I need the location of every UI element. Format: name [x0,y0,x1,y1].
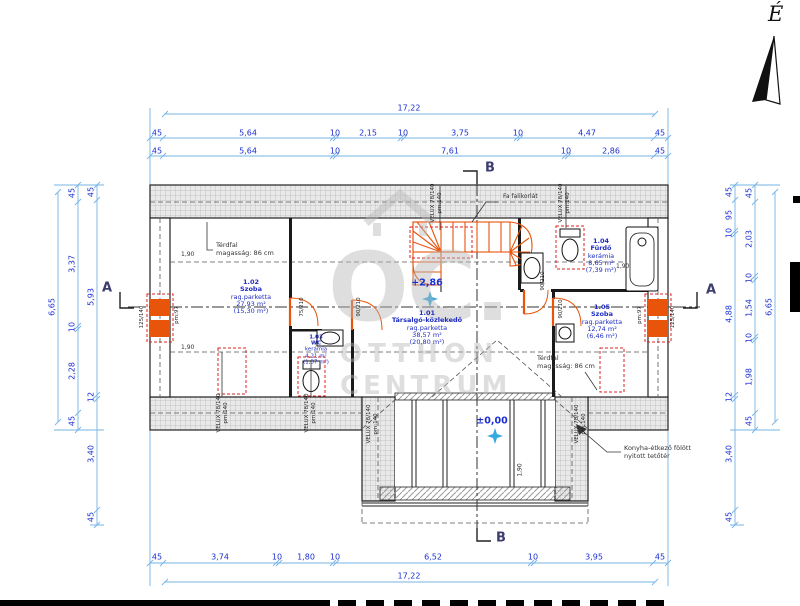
dim-label: 3,74 [211,553,229,562]
dim-label: 95 [725,210,734,220]
dim-label: 2,15 [359,129,377,138]
dim-label: 45 [87,512,96,522]
room-area: 4,21 m² [303,353,329,359]
dim-label: 3,37 [68,255,77,273]
dim-label: 45 [745,416,754,426]
dim-label: 45 [68,416,77,426]
section-marker-b-bottom: B [496,531,506,546]
level-ground: ±0,00 [476,416,507,427]
dim-label: 45 [655,553,665,562]
window-size-label: 125/140 [670,306,676,329]
dim-label: 10 [513,129,523,138]
headroom-label: 1,90 [517,463,524,476]
floor-plan-drawing: OC. OTTHON CENTRUM [0,0,800,606]
north-label: É [768,2,783,26]
dim-label: 1,80 [297,553,315,562]
dim-label: 10 [398,129,408,138]
room-area-reduced: (20,80 m²) [392,339,462,346]
dim-label: 45 [725,512,734,522]
dim-label: 45 [745,188,754,198]
dim-label: 10 [725,228,734,238]
dim-label: 10 [561,147,571,156]
dim-label: 10 [528,553,538,562]
door-size-label: 75/210 [299,297,305,316]
dim-label: 10 [745,273,754,283]
velux-label: VELUX 78/140 [366,405,372,444]
dim-label: 45 [152,147,162,156]
door-size-label: 90/210 [558,299,564,318]
dim-label: 10 [330,553,340,562]
dim-label: 10 [745,333,754,343]
dim-label: 6,65 [765,298,774,316]
dim-label: 45 [655,147,665,156]
door-size-label: 90/210 [540,271,546,290]
dim-label: 10 [272,553,282,562]
floorplan-page: OC. OTTHON CENTRUM É A A B B +2,86 ±0,00… [0,0,800,606]
dim-label: 1,54 [745,299,754,317]
room-label-1-03: 1.03 WC kerámia 4,21 m² (1,37 m²) [303,334,329,365]
room-area-reduced: (7,39 m²) [586,267,617,274]
room-label-1-04: 1.04 Fürdő kerámia 8,65 m² (7,39 m²) [586,238,617,274]
room-label-1-01: 1.01 Társalgó-közlekedő rag.parketta 38,… [392,310,462,346]
section-marker-b-top: B [485,161,495,176]
velux-sill-label: pm:140 [565,192,571,213]
velux-sill-label: pm:140 [223,402,229,423]
velux-label: VELUX 78/140 [558,184,564,223]
dim-label: 45 [152,129,162,138]
room-area-reduced: (1,37 m²) [303,359,329,365]
velux-sill-label: pm:140 [581,413,587,434]
dim-label: 1,98 [745,368,754,386]
room-area-reduced: (6,46 m²) [582,333,622,340]
dim-label: 10 [330,147,340,156]
dim-label: 5,64 [239,147,257,156]
dim-label: 3,40 [725,445,734,463]
velux-label: VELUX 78/140 [304,394,310,433]
tub-length-label: 1,90 [616,263,629,271]
dim-label: 5,93 [87,288,96,306]
dim-label: 4,88 [725,305,734,323]
headroom-label: 1,90 [181,344,194,352]
dim-label: 10 [68,322,77,332]
dim-label: 4,47 [578,129,596,138]
dim-label: 45 [87,187,96,197]
room-label-1-02: 1.02 Szoba rag.parketta 27,93 m² (15,30 … [231,279,271,315]
north-arrow-icon [752,36,780,104]
open-roof-note: Konyha-étkező fölött nyitott tetőtér [624,444,691,460]
window-sill-label: pm:97 [637,306,643,324]
window-size-label: 125/140 [139,306,145,329]
dim-label: 2,28 [68,362,77,380]
dim-label: 10 [330,129,340,138]
window-sill-label: pm:97 [174,306,180,324]
velux-sill-label: pm:140 [373,413,379,434]
dim-label: 7,61 [441,147,459,156]
room-area-reduced: (15,30 m²) [231,308,271,315]
dim-label: 45 [725,187,734,197]
dim-label: 2,86 [602,147,620,156]
velux-label: VELUX 78/140 [216,394,222,433]
dim-label: 5,64 [239,129,257,138]
dim-label: 3,95 [585,553,603,562]
velux-label: VELUX 78/140 [430,184,436,223]
dim-label: 6,52 [424,553,442,562]
dim-label: 12 [87,392,96,402]
headroom-label: 1,90 [181,251,194,259]
velux-sill-label: pm:140 [311,402,317,423]
section-marker-a-right: A [706,283,716,298]
railing-note: Fa falikorlát [503,193,538,201]
dim-label: 6,65 [48,298,57,316]
dim-label: 45 [68,188,77,198]
dim-label: 17,22 [398,104,421,113]
dim-label: 3,40 [87,445,96,463]
level-upper: +2,86 [411,278,442,289]
room-label-1-05: 1.05 Szoba rag.parketta 12,74 m² (6,46 m… [582,304,622,340]
dim-label: 17,22 [398,572,421,581]
kneewall-note-right: Térdfal magasság: 86 cm [537,354,595,370]
velux-sill-label: pm:140 [437,192,443,213]
dim-label: 2,03 [745,230,754,248]
dim-label: 12 [725,392,734,402]
section-marker-a-left: A [102,281,112,296]
toilet-bathroom [560,229,580,237]
kneewall-note-left: Térdfal magasság: 86 cm [216,241,274,257]
velux-label: VELUX 78/140 [574,405,580,444]
door-size-label: 90/210 [356,297,362,316]
dim-label: 45 [655,129,665,138]
watermark-line2: CENTRUM [340,371,511,401]
dim-label: 45 [152,553,162,562]
room-finish: kerámia [303,347,329,353]
dim-label: 3,75 [451,129,469,138]
